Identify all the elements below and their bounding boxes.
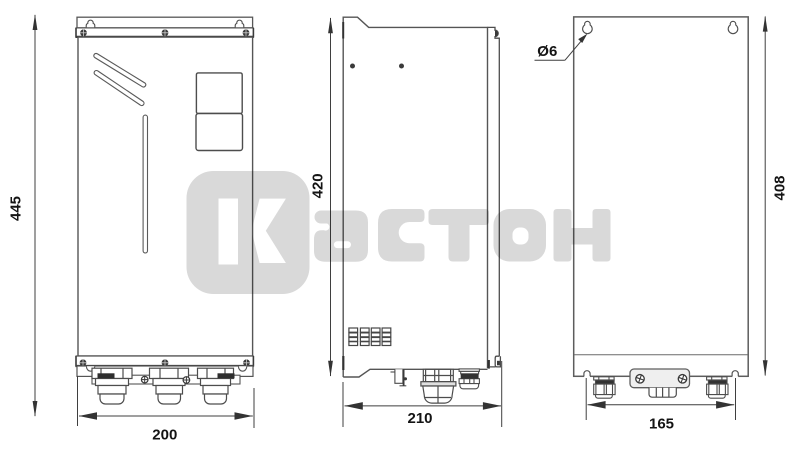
svg-text:Ø6: Ø6 xyxy=(537,43,557,60)
svg-text:408: 408 xyxy=(772,175,789,200)
svg-text:420: 420 xyxy=(310,173,327,198)
svg-text:200: 200 xyxy=(152,427,177,444)
svg-text:445: 445 xyxy=(8,196,25,221)
svg-text:210: 210 xyxy=(408,410,433,427)
svg-text:165: 165 xyxy=(649,416,674,433)
